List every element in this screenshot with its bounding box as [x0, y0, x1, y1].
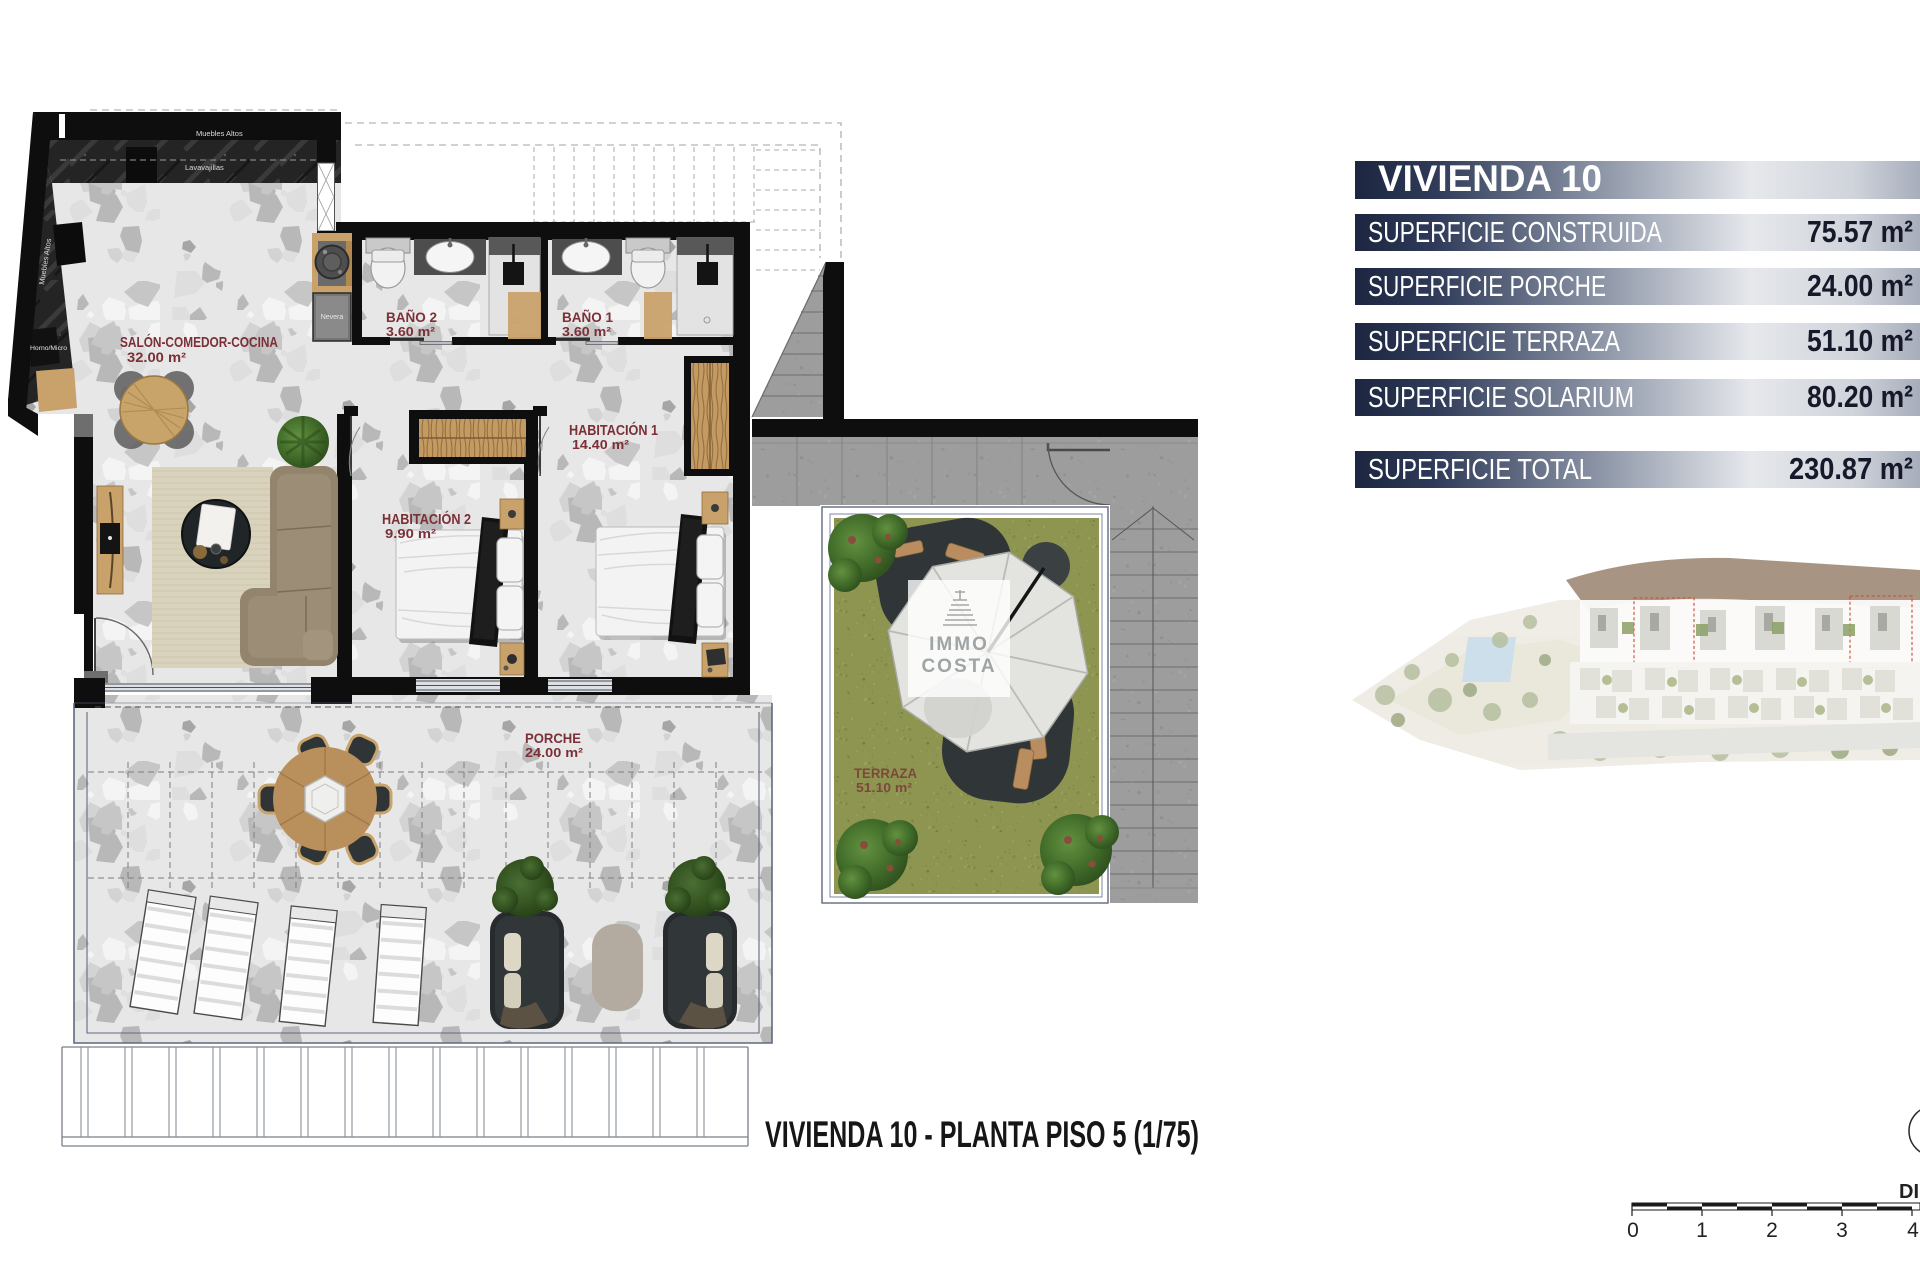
- svg-text:Lavavajillas: Lavavajillas: [185, 163, 224, 172]
- svg-text:3: 3: [1836, 1219, 1848, 1242]
- svg-text:51.10 m²: 51.10 m²: [1807, 323, 1913, 358]
- svg-text:230.87 m²: 230.87 m²: [1789, 451, 1913, 486]
- svg-text:SUPERFICIE TOTAL: SUPERFICIE TOTAL: [1368, 454, 1592, 486]
- svg-text:SUPERFICIE CONSTRUIDA: SUPERFICIE CONSTRUIDA: [1368, 217, 1663, 249]
- svg-text:51.10 m²: 51.10 m²: [856, 780, 913, 795]
- svg-text:BAÑO 1: BAÑO 1: [562, 310, 613, 325]
- svg-text:80.20 m²: 80.20 m²: [1807, 379, 1913, 414]
- svg-text:VIVIENDA 10 - PLANTA PISO 5 (1: VIVIENDA 10 - PLANTA PISO 5 (1/75): [765, 1114, 1199, 1155]
- svg-text:Horno/Micro: Horno/Micro: [30, 345, 67, 352]
- svg-text:32.00 m²: 32.00 m²: [127, 350, 187, 365]
- svg-text:SUPERFICIE PORCHE: SUPERFICIE PORCHE: [1368, 271, 1606, 303]
- svg-text:PORCHE: PORCHE: [525, 730, 581, 746]
- svg-text:14.40 m²: 14.40 m²: [572, 437, 630, 452]
- svg-text:SUPERFICIE TERRAZA: SUPERFICIE TERRAZA: [1368, 326, 1621, 358]
- svg-text:75.57 m²: 75.57 m²: [1807, 214, 1913, 249]
- svg-text:SUPERFICIE SOLARIUM: SUPERFICIE SOLARIUM: [1368, 382, 1634, 414]
- svg-text:4: 4: [1907, 1219, 1919, 1242]
- svg-text:COSTA: COSTA: [921, 656, 996, 677]
- svg-text:24.00 m²: 24.00 m²: [525, 745, 584, 760]
- svg-text:0: 0: [1627, 1219, 1639, 1242]
- svg-text:Nevera: Nevera: [321, 314, 344, 321]
- svg-text:VIVIENDA 10: VIVIENDA 10: [1378, 158, 1602, 199]
- svg-text:1: 1: [1696, 1219, 1708, 1242]
- svg-text:3.60 m²: 3.60 m²: [562, 324, 612, 339]
- svg-text:24.00 m²: 24.00 m²: [1807, 268, 1913, 303]
- svg-text:TERRAZA: TERRAZA: [854, 765, 917, 781]
- svg-text:Muebles Altos: Muebles Altos: [196, 129, 243, 138]
- svg-text:3.60 m²: 3.60 m²: [386, 324, 436, 339]
- svg-text:2: 2: [1766, 1219, 1778, 1242]
- svg-text:BAÑO 2: BAÑO 2: [386, 310, 437, 325]
- svg-text:DIN: DIN: [1899, 1181, 1920, 1203]
- svg-text:IMMO: IMMO: [929, 634, 989, 655]
- svg-text:SALÓN-COMEDOR-COCINA: SALÓN-COMEDOR-COCINA: [120, 333, 278, 351]
- svg-text:9.90 m²: 9.90 m²: [385, 526, 437, 541]
